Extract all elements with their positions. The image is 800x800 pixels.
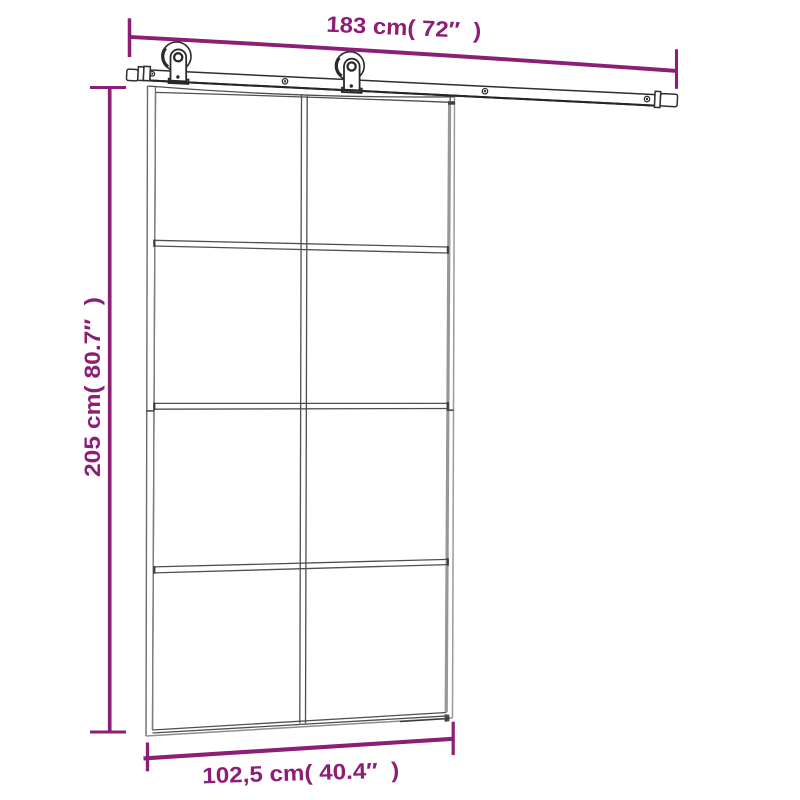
svg-text:205 cm( 80.7″ ): 205 cm( 80.7″ ) <box>80 297 105 477</box>
